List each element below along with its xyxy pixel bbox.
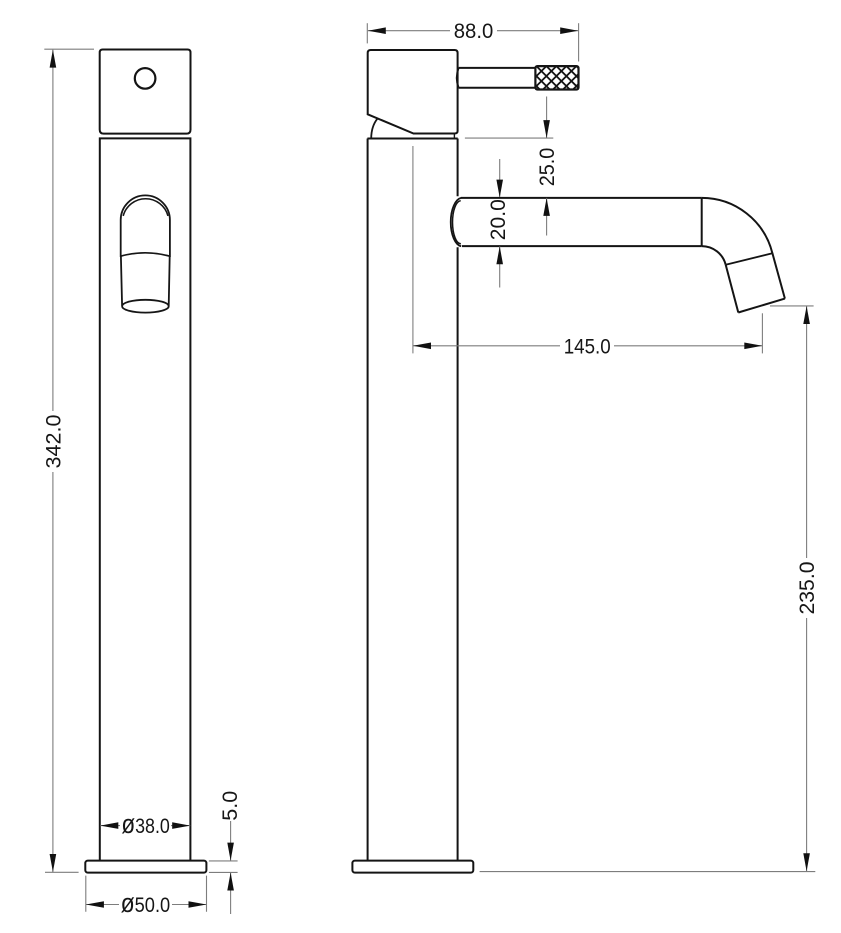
svg-text:25.0: 25.0	[536, 148, 559, 187]
svg-text:342.0: 342.0	[42, 415, 65, 469]
svg-text:88.0: 88.0	[454, 20, 494, 43]
svg-text:20.0: 20.0	[487, 199, 510, 240]
svg-text:145.0: 145.0	[564, 335, 611, 358]
svg-text:5.0: 5.0	[219, 791, 242, 821]
svg-text:235.0: 235.0	[796, 562, 819, 615]
